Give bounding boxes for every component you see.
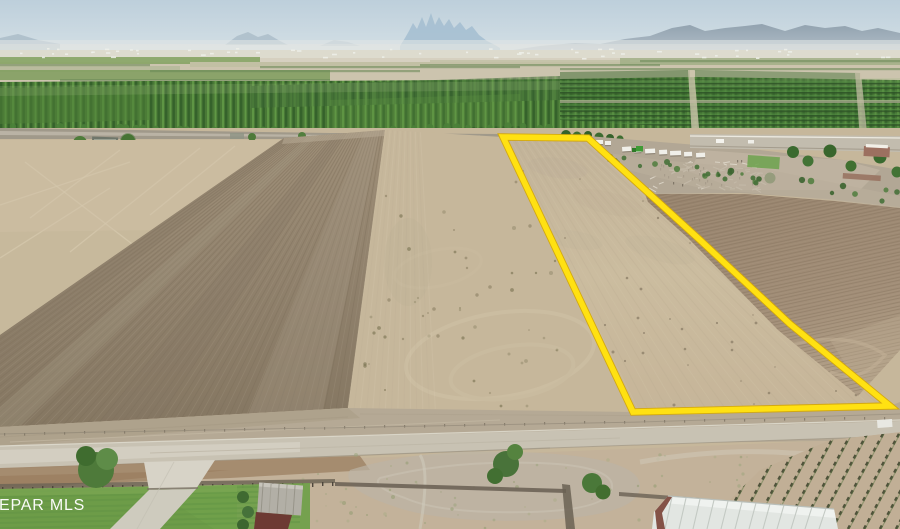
- svg-text:EPAR MLS: EPAR MLS: [0, 497, 85, 514]
